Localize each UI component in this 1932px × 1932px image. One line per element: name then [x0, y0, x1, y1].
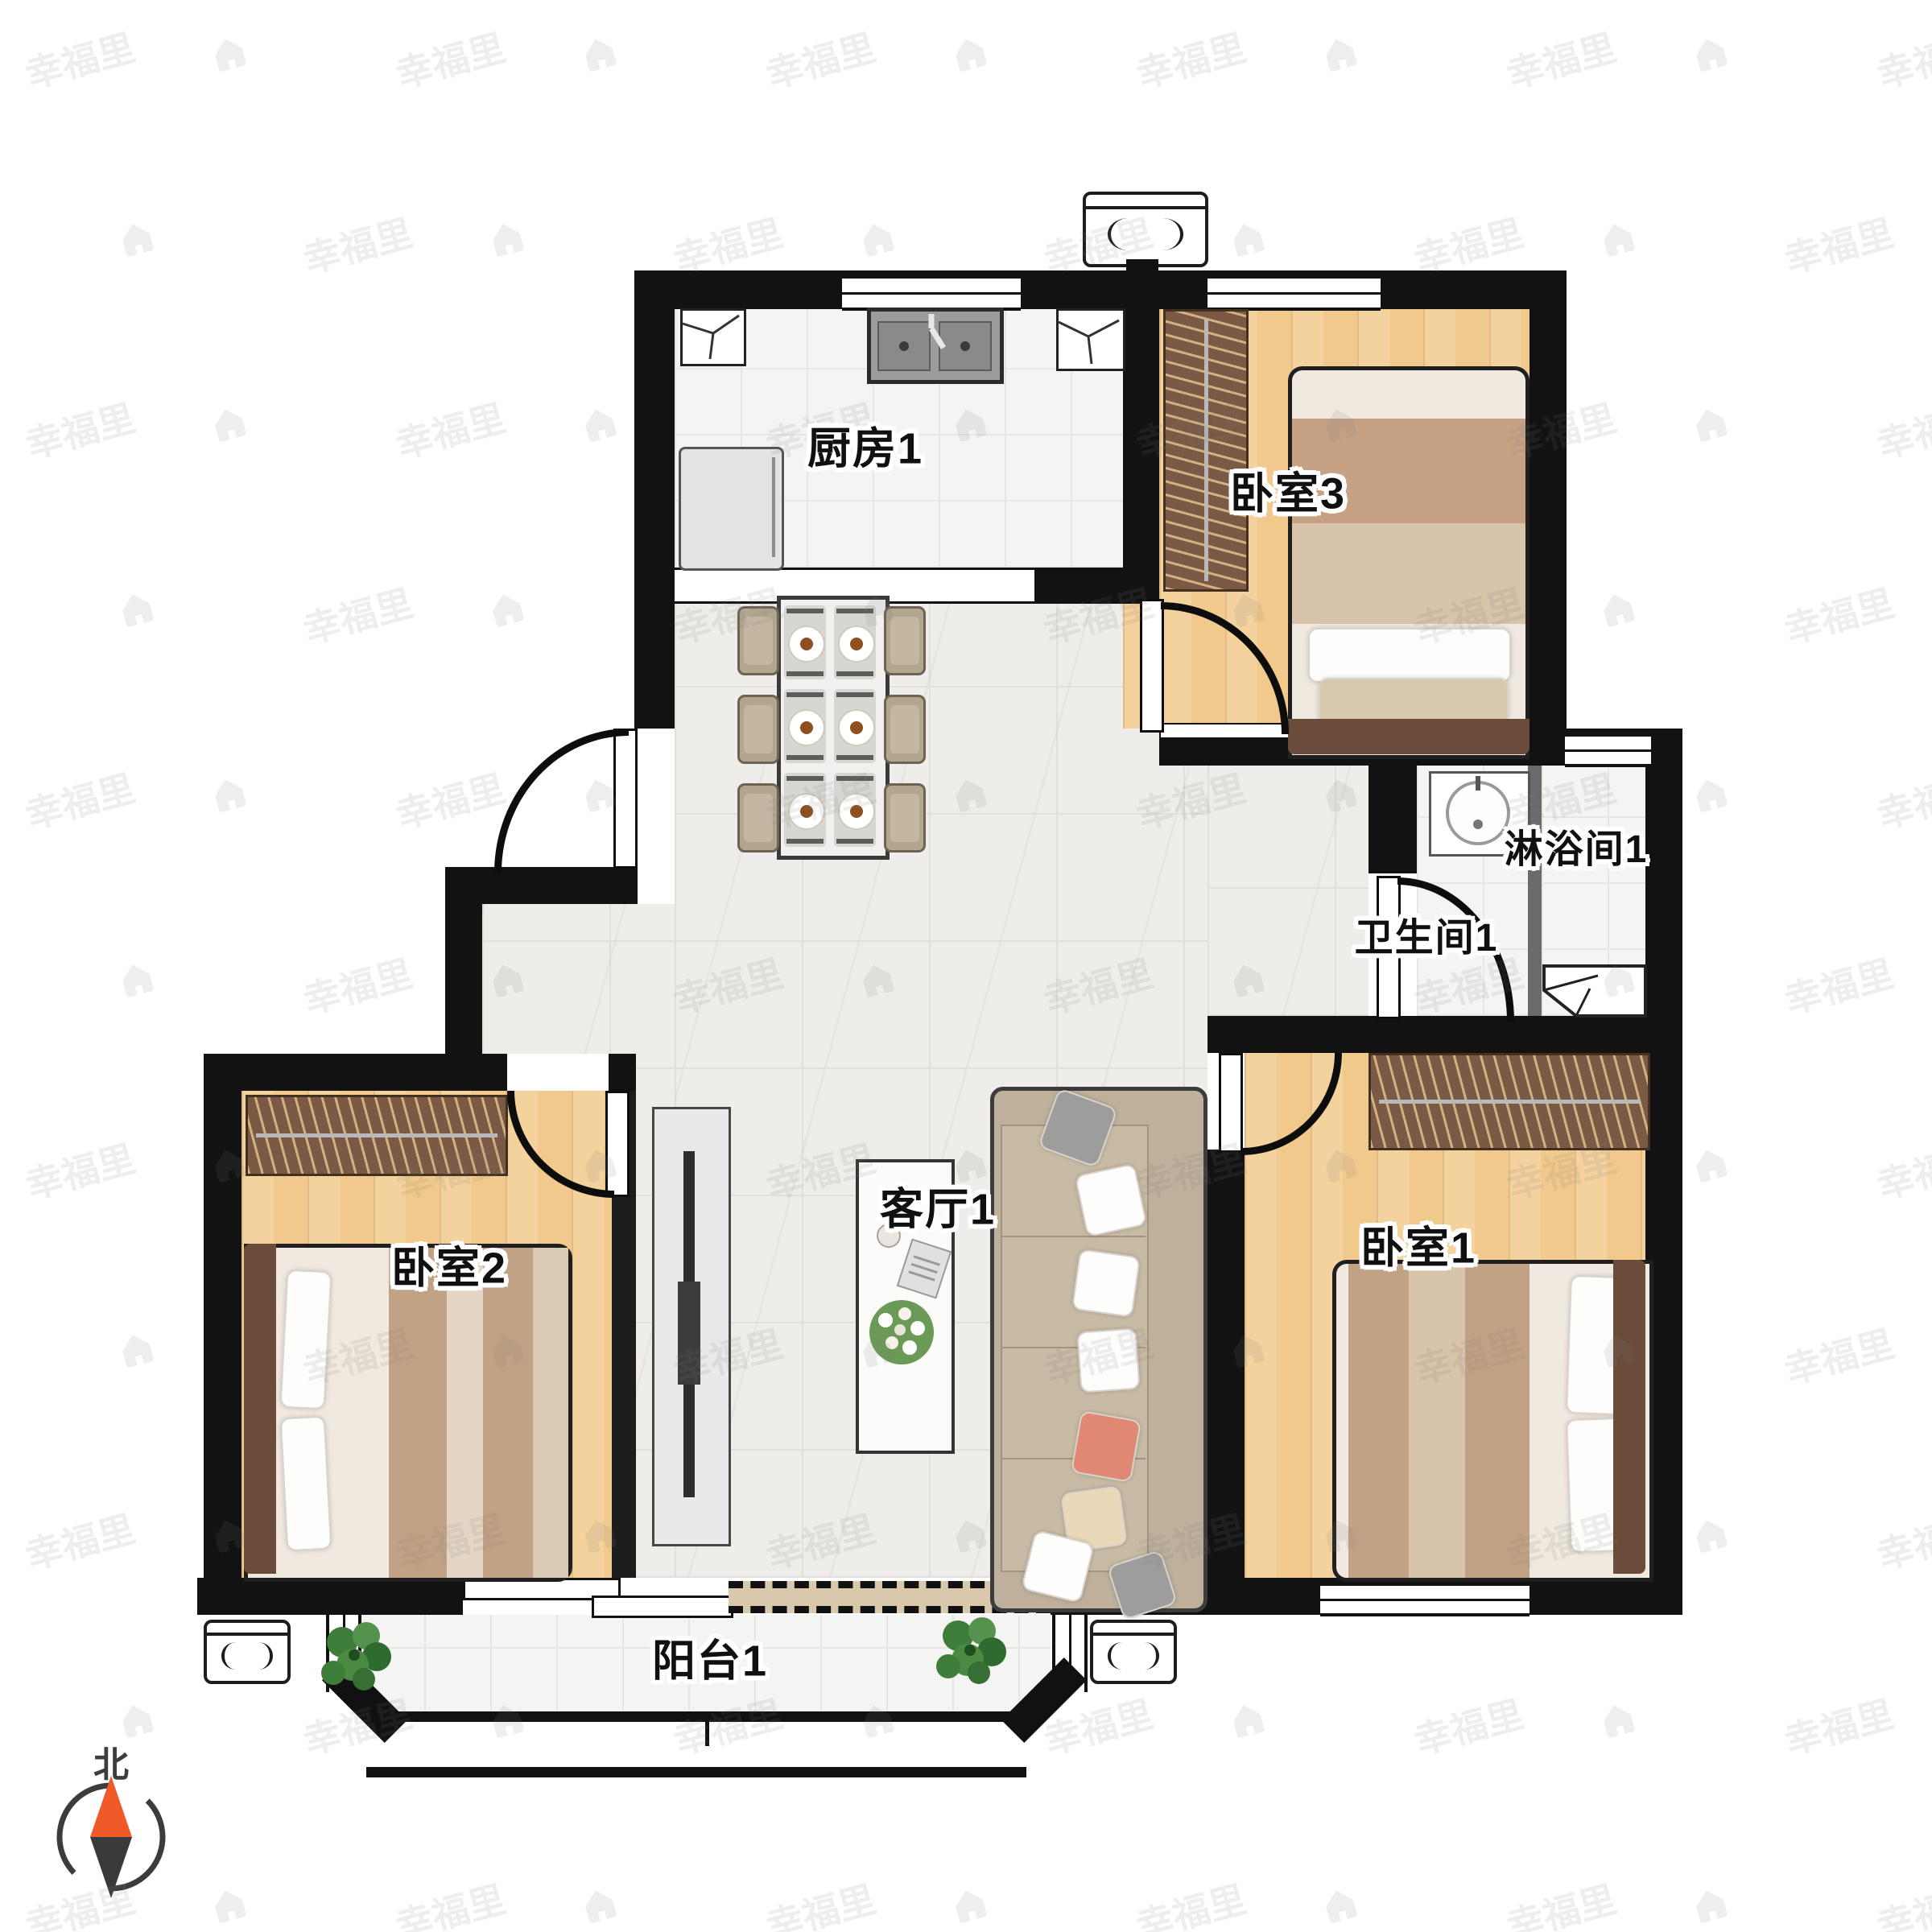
watermark-text: 幸福里 — [1871, 759, 1932, 839]
watermark-house-icon — [204, 398, 258, 457]
watermark-house-icon — [1222, 1694, 1276, 1753]
watermark-house-icon — [481, 583, 535, 642]
bedroom3-wardrobe — [1163, 309, 1249, 592]
place-setting — [834, 605, 876, 679]
balcony-slider-panel-2 — [592, 1596, 733, 1618]
watermark-house-icon — [1592, 583, 1646, 642]
living-label: 客厅1 — [880, 1174, 996, 1237]
watermark-text: 幸福里 — [19, 1500, 140, 1579]
place-setting — [784, 605, 826, 679]
watermark-house-icon — [1222, 213, 1276, 272]
kitchen-sink — [867, 308, 1004, 384]
floorplan-canvas: 厨房1 卧室3 淋浴间1 卫生间1 客厅1 卧室2 卧室1 阳台1 北 幸福里幸… — [0, 0, 1932, 1932]
watermark-house-icon — [574, 398, 628, 457]
watermark-house-icon — [204, 27, 258, 87]
wall-bedroom2-left — [204, 1054, 242, 1615]
dining-chair — [737, 783, 779, 852]
wall-bathroom-left — [1368, 766, 1417, 873]
bedroom2-label: 卧室2 — [391, 1232, 507, 1296]
watermark-text: 幸福里 — [1501, 19, 1621, 98]
watermark-house-icon — [1592, 1694, 1646, 1753]
tv-base — [678, 1282, 700, 1385]
watermark-text: 幸福里 — [1778, 574, 1899, 654]
balcony-parapet-seam — [705, 1722, 709, 1746]
wall-bed3-right — [1529, 270, 1567, 729]
watermark-text: 幸福里 — [390, 1870, 510, 1932]
ac-unit-top — [1083, 192, 1208, 267]
ac-connector-top — [1126, 259, 1158, 272]
watermark-text: 幸福里 — [297, 944, 418, 1024]
kitchen-corner-cabinet-left — [680, 308, 746, 366]
watermark-house-icon — [574, 1879, 628, 1932]
watermark-text: 幸福里 — [1871, 1500, 1932, 1579]
watermark-text: 幸福里 — [1871, 1129, 1932, 1209]
bedroom3-label: 卧室3 — [1230, 458, 1346, 522]
watermark-house-icon — [111, 953, 165, 1013]
watermark-text: 幸福里 — [1408, 1685, 1529, 1765]
wall-kitchen-bed3-divider — [1123, 309, 1159, 604]
sofa-pillow — [1071, 1249, 1141, 1318]
watermark-text: 幸福里 — [19, 389, 140, 469]
watermark-house-icon — [944, 1879, 998, 1932]
bedroom2-headboard — [244, 1244, 276, 1574]
watermark-house-icon — [1315, 1879, 1368, 1932]
compass-north-label: 北 — [93, 1736, 129, 1787]
watermark-house-icon — [1685, 27, 1739, 87]
bath-hall-floor — [1207, 766, 1368, 1016]
watermark-house-icon — [481, 213, 535, 272]
watermark-text: 幸福里 — [297, 204, 418, 283]
watermark-house-icon — [944, 27, 998, 87]
place-setting — [834, 773, 876, 847]
watermark-text: 幸福里 — [390, 389, 510, 469]
watermark-house-icon — [1685, 398, 1739, 457]
bedroom3-headboard — [1288, 719, 1529, 754]
sofa-pillow — [1076, 1328, 1140, 1393]
watermark-house-icon — [111, 1323, 165, 1383]
watermark-house-icon — [1685, 1879, 1739, 1932]
shower-floor — [1542, 766, 1645, 1016]
bathroom-label: 卫生间1 — [1355, 906, 1499, 962]
watermark-house-icon — [204, 1879, 258, 1932]
dining-chair — [737, 695, 779, 764]
watermark-text: 幸福里 — [1778, 204, 1899, 283]
watermark-house-icon — [1315, 27, 1368, 87]
watermark-text: 幸福里 — [19, 759, 140, 839]
watermark-text: 幸福里 — [760, 1870, 881, 1932]
watermark-house-icon — [852, 213, 906, 272]
bedroom3-window — [1207, 275, 1381, 311]
bedroom1-wardrobe — [1368, 1053, 1650, 1150]
ac-unit-bottom-right — [1090, 1620, 1177, 1684]
watermark-house-icon — [204, 768, 258, 828]
entry-door-swing — [494, 729, 629, 873]
watermark-text: 幸福里 — [297, 574, 418, 654]
watermark-house-icon — [111, 213, 165, 272]
watermark-text: 幸福里 — [1871, 389, 1932, 469]
watermark-text: 幸福里 — [1130, 1870, 1251, 1932]
wall-top — [634, 270, 1567, 309]
shower-label: 淋浴间1 — [1505, 817, 1649, 873]
refrigerator — [679, 447, 784, 571]
watermark-text: 幸福里 — [19, 19, 140, 98]
watermark-house-icon — [1592, 213, 1646, 272]
kitchen-window — [842, 275, 1021, 311]
watermark-text: 幸福里 — [1778, 1315, 1899, 1394]
bedroom1-window — [1320, 1583, 1529, 1616]
watermark-text: 幸福里 — [1871, 19, 1932, 98]
sofa-pillow — [1075, 1163, 1148, 1237]
place-setting — [784, 689, 826, 763]
bedroom1-label: 卧室1 — [1360, 1212, 1476, 1276]
sofa-pillow — [1071, 1410, 1141, 1483]
bedroom3-pillow — [1308, 628, 1511, 683]
balcony-label: 阳台1 — [652, 1625, 768, 1689]
dining-chair — [737, 606, 779, 675]
shower-window — [1565, 733, 1651, 767]
kitchen-corner-cabinet-right — [1056, 308, 1125, 371]
watermark-text: 幸福里 — [760, 19, 881, 98]
watermark-text: 幸福里 — [1871, 1870, 1932, 1932]
bedroom1-headboard — [1613, 1260, 1645, 1574]
watermark-text: 幸福里 — [19, 1870, 140, 1932]
watermark-house-icon — [111, 583, 165, 642]
watermark-house-icon — [1685, 768, 1739, 828]
bedroom2-door-threshold — [507, 1054, 609, 1091]
bedroom2-pillow — [280, 1269, 332, 1410]
place-setting — [784, 773, 826, 847]
watermark-text: 幸福里 — [390, 759, 510, 839]
dining-chair — [884, 783, 926, 852]
watermark-text: 幸福里 — [19, 1129, 140, 1209]
watermark-text: 幸福里 — [1778, 1685, 1899, 1765]
ac-unit-bottom-left — [204, 1620, 291, 1684]
watermark-text: 幸福里 — [1501, 1870, 1621, 1932]
dining-chair — [884, 695, 926, 764]
dining-chair — [884, 606, 926, 675]
place-setting — [834, 689, 876, 763]
watermark-text: 幸福里 — [390, 19, 510, 98]
watermark-text: 幸福里 — [1130, 19, 1251, 98]
watermark-house-icon — [574, 27, 628, 87]
wall-bottom-left — [197, 1578, 463, 1615]
watermark-text: 幸福里 — [1778, 944, 1899, 1024]
bedroom2-wardrobe — [246, 1095, 508, 1176]
bedroom1-door-leaf — [1219, 1053, 1243, 1153]
balcony-parapet — [366, 1711, 1026, 1777]
kitchen-label: 厨房1 — [807, 413, 923, 477]
bedroom2-pillow — [280, 1416, 332, 1552]
watermark-house-icon — [1685, 1138, 1739, 1198]
watermark-house-icon — [1685, 1509, 1739, 1568]
wall-kitchen-left — [634, 270, 675, 729]
